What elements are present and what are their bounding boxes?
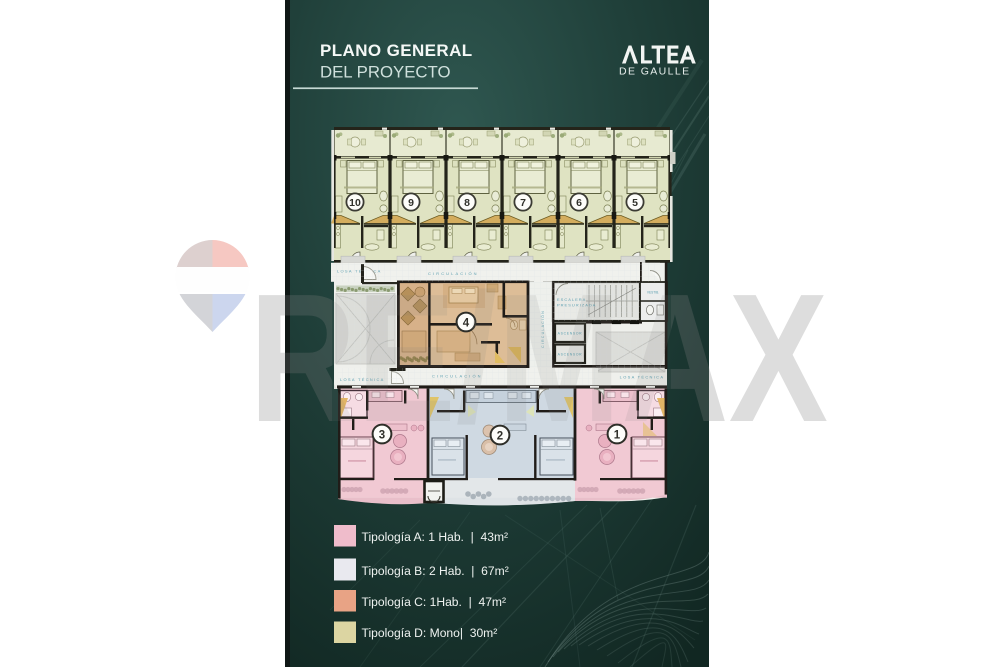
svg-text:8: 8 xyxy=(464,197,470,209)
svg-text:DEL PROYECTO: DEL PROYECTO xyxy=(320,63,451,82)
svg-text:PLANO GENERAL: PLANO GENERAL xyxy=(320,41,473,60)
svg-text:Tipología B: 2 Hab. | 67m²: Tipología B: 2 Hab. | 67m² xyxy=(362,564,509,578)
svg-text:5: 5 xyxy=(632,197,638,209)
svg-text:Tipología A: 1 Hab. | 43m²: Tipología A: 1 Hab. | 43m² xyxy=(362,530,509,544)
svg-text:10: 10 xyxy=(349,197,361,209)
svg-text:6: 6 xyxy=(576,197,582,209)
svg-text:7: 7 xyxy=(520,197,526,209)
svg-text:Tipología D: Mono| 30m²: Tipología D: Mono| 30m² xyxy=(362,626,498,640)
svg-text:9: 9 xyxy=(408,197,414,209)
svg-text:Tipología C: 1Hab. | 47m²: Tipología C: 1Hab. | 47m² xyxy=(362,595,507,609)
svg-text:DE GAULLE: DE GAULLE xyxy=(619,66,691,78)
